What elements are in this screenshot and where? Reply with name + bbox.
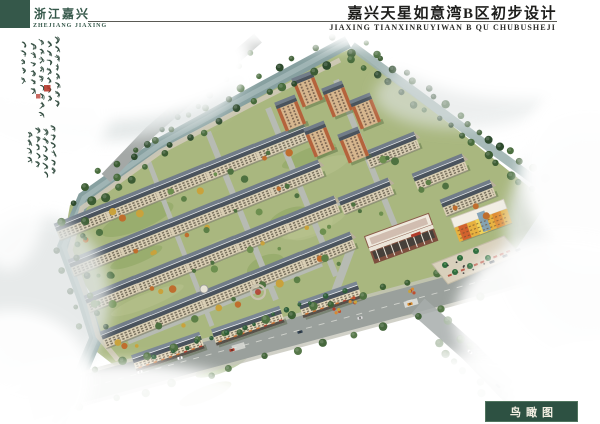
calligraphy-strokes: [21, 37, 60, 178]
project-title-cn: 嘉兴天星如意湾B区初步设计: [347, 2, 557, 23]
view-label-box: 鸟瞰图: [485, 401, 578, 422]
handwritten-annotation: [6, 30, 78, 178]
brand-color-block: [0, 0, 30, 28]
bird-eye-rendering: [0, 0, 600, 424]
brand-region-en: ZHEJIANG JIAXING: [33, 23, 107, 29]
project-title-en: JIAXING TIANXINRUYIWAN B QU CHUBUSHEJI: [329, 23, 556, 32]
brand-region-cn: 浙江嘉兴: [34, 5, 90, 22]
presentation-sheet: 浙江嘉兴 ZHEJIANG JIAXING 嘉兴天星如意湾B区初步设计 JIAX…: [0, 0, 600, 424]
view-label: 鸟瞰图: [505, 407, 558, 419]
